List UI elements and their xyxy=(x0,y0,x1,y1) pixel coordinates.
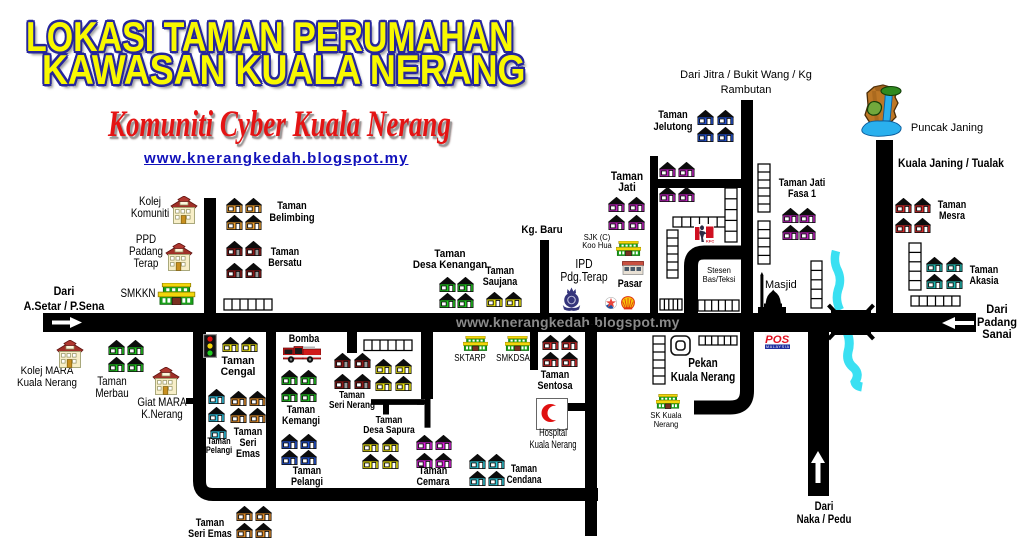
svg-text:KFC: KFC xyxy=(706,239,714,244)
svg-text:MALAYSIA: MALAYSIA xyxy=(766,345,790,349)
